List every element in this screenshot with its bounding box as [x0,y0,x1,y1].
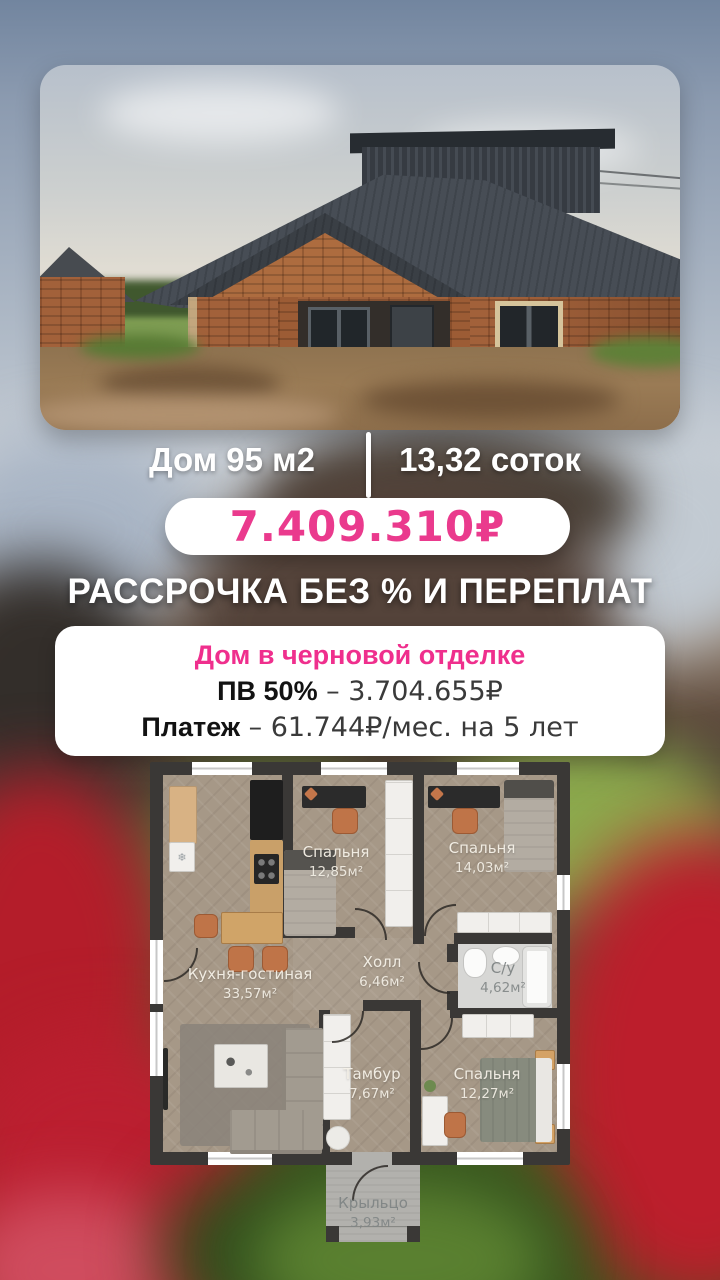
floor-plan: ❄ [150,762,570,1165]
room-label-tambur: Тамбур 7,67м² [343,1065,400,1103]
wall [413,775,424,944]
wall [413,927,424,944]
closet [462,1014,534,1038]
desk-chair [452,808,478,834]
window [457,762,519,775]
room-label-bathroom: С/у 4,62м² [480,959,526,997]
cloud [100,83,340,143]
house-area-label: Дом 95 м2 [149,441,315,479]
spec-divider [366,432,371,498]
coffee-table [214,1044,268,1088]
porch-wall-stub [326,1226,339,1242]
wall [447,944,458,962]
room-label-kitchen-living: Кухня-гостиная 33,57м² [188,965,312,1003]
desk-chair [444,1112,466,1138]
porch-wall-stub [407,1226,420,1242]
plant [424,1080,436,1092]
bathtub [522,946,552,1008]
offer-card: Дом в черновой отделке ПВ 50% – 3.704.65… [55,626,665,756]
payment-value: – 61.744₽/мес. на 5 лет [249,712,579,743]
desk-chair [332,808,358,834]
sofa [230,1110,322,1154]
wall [363,1000,421,1011]
offer-title: Дом в черновой отделке [195,640,526,671]
window [150,1012,163,1076]
room-label-porch: Крыльцо 3,93м² [338,1194,408,1232]
dirt-path [40,395,340,430]
kitchen-counter [250,780,283,840]
dresser [457,912,552,933]
bed-pillows [536,1058,552,1142]
window [457,1152,523,1165]
tv [163,1048,168,1110]
down-payment-line: ПВ 50% – 3.704.655₽ [217,676,503,707]
down-payment-label: ПВ 50% [217,676,317,706]
fridge: ❄ [169,842,195,872]
snowflake-icon: ❄ [177,851,186,864]
dining-table [221,912,283,944]
round-rug [326,1126,350,1150]
price-value: 7.409.310₽ [230,502,506,551]
down-payment-value: – 3.704.655₽ [326,676,503,707]
window [557,875,570,910]
window [321,762,387,775]
stove [254,854,279,884]
bed-pillows [504,780,554,798]
room-label-bedroom1: Спальня 12,85м² [303,843,370,881]
dirt-patch [360,380,620,420]
wall [454,933,552,944]
room-label-bedroom2: Спальня 14,03м² [449,839,516,877]
window [192,762,252,775]
kitchen-cabinet [169,786,197,844]
front-door-opening [352,1152,392,1165]
wall [410,1011,421,1152]
payment-line: Платеж – 61.744₽/мес. на 5 лет [141,712,578,743]
installment-banner: РАССРОЧКА БЕЗ % И ПЕРЕПЛАТ [0,572,720,612]
window [150,940,163,1004]
chair [194,914,218,938]
grass-tuft [80,335,200,359]
real-estate-ad-poster: Дом 95 м2 13,32 соток 7.409.310₽ РАССРОЧ… [0,0,720,1280]
price-pill: 7.409.310₽ [165,498,570,555]
wardrobe [385,780,413,927]
land-area-label: 13,32 соток [399,441,581,479]
room-label-bedroom3: Спальня 12,27м² [454,1065,521,1103]
payment-label: Платеж [141,712,240,742]
window [557,1064,570,1129]
house-photo [40,65,680,430]
porch: Крыльцо 3,93м² [326,1165,420,1242]
room-label-hall: Холл 6,46м² [359,953,405,991]
